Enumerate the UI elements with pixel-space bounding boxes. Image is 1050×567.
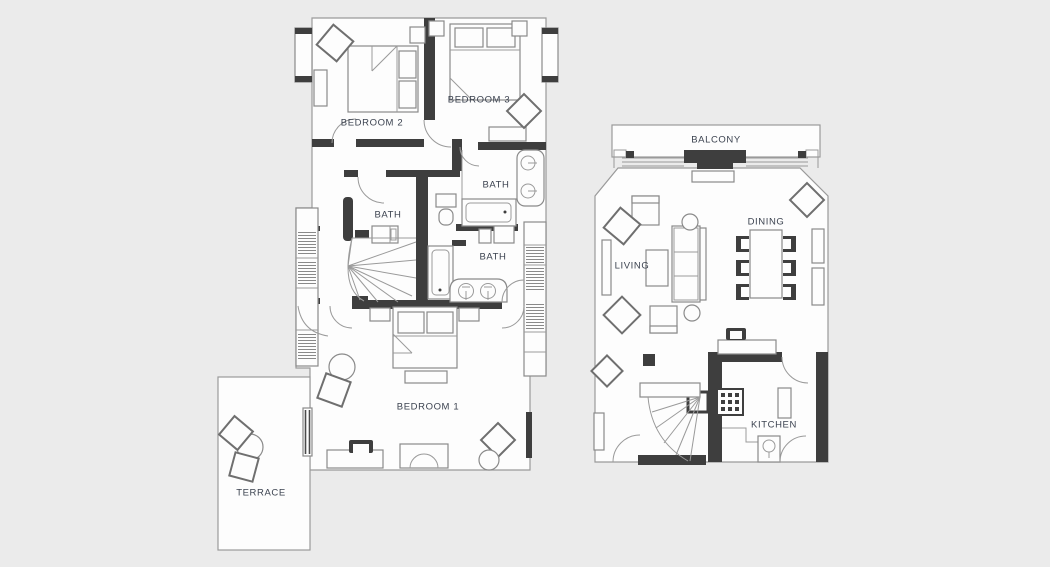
room-label-balcony: BALCONY — [691, 135, 741, 146]
sofa-icon — [672, 226, 706, 302]
floor-plan-canvas: BEDROOM 2 BEDROOM 3 BATH BATH BATH BEDRO… — [0, 0, 1050, 567]
room-label-bath-left: BATH — [374, 210, 401, 221]
room-label-dining: DINING — [748, 217, 785, 228]
room-label-bedroom3: BEDROOM 3 — [448, 95, 510, 106]
washbasin-icon — [372, 226, 398, 243]
room-label-kitchen: KITCHEN — [751, 420, 797, 431]
nightstand-icon — [370, 308, 390, 321]
bathtub-icon — [428, 246, 453, 299]
window-icon — [303, 408, 312, 456]
bed-icon — [450, 24, 520, 100]
bench-icon — [405, 371, 447, 383]
nightstand-icon — [512, 21, 527, 36]
nightstand-icon — [459, 308, 479, 321]
dining-table-icon — [736, 230, 796, 300]
window-icon — [542, 28, 558, 82]
wardrobe-right — [524, 222, 546, 376]
fridge-icon — [778, 388, 791, 418]
console-table-icon — [692, 171, 734, 182]
room-label-bedroom2: BEDROOM 2 — [341, 118, 403, 129]
sideboard-icon — [812, 268, 824, 305]
main-floor-plan — [591, 125, 828, 465]
dresser-icon — [314, 70, 327, 106]
nightstand-icon — [410, 27, 425, 43]
floor-plans-drawing — [0, 0, 1050, 567]
room-label-living: LIVING — [615, 261, 650, 272]
kitchen-sink-icon — [758, 436, 780, 462]
ottoman-icon — [400, 444, 448, 468]
window-icon — [526, 412, 532, 458]
stove-icon — [717, 389, 743, 415]
shelf-icon — [602, 240, 611, 295]
bed-icon — [348, 46, 418, 112]
room-label-bedroom1: BEDROOM 1 — [397, 402, 459, 413]
bathtub-icon — [462, 199, 516, 226]
side-table-icon — [682, 214, 698, 230]
side-table-icon — [479, 450, 499, 470]
window-icon — [295, 28, 312, 82]
armchair-icon — [650, 306, 677, 333]
vanity-sinks-icon — [517, 150, 544, 206]
room-label-bath-lower: BATH — [479, 252, 506, 263]
room-label-terrace: TERRACE — [236, 488, 286, 499]
washbasin-icon — [479, 226, 514, 243]
bed-icon — [393, 307, 457, 368]
shelf-icon — [594, 413, 604, 450]
wardrobe-left — [296, 208, 318, 366]
room-label-bath-ensuite: BATH — [482, 180, 509, 191]
sideboard-icon — [812, 229, 824, 263]
dresser-icon — [489, 127, 526, 141]
pedestal-sinks-icon — [450, 279, 507, 302]
nightstand-icon — [429, 21, 444, 36]
side-table-icon — [684, 305, 700, 321]
